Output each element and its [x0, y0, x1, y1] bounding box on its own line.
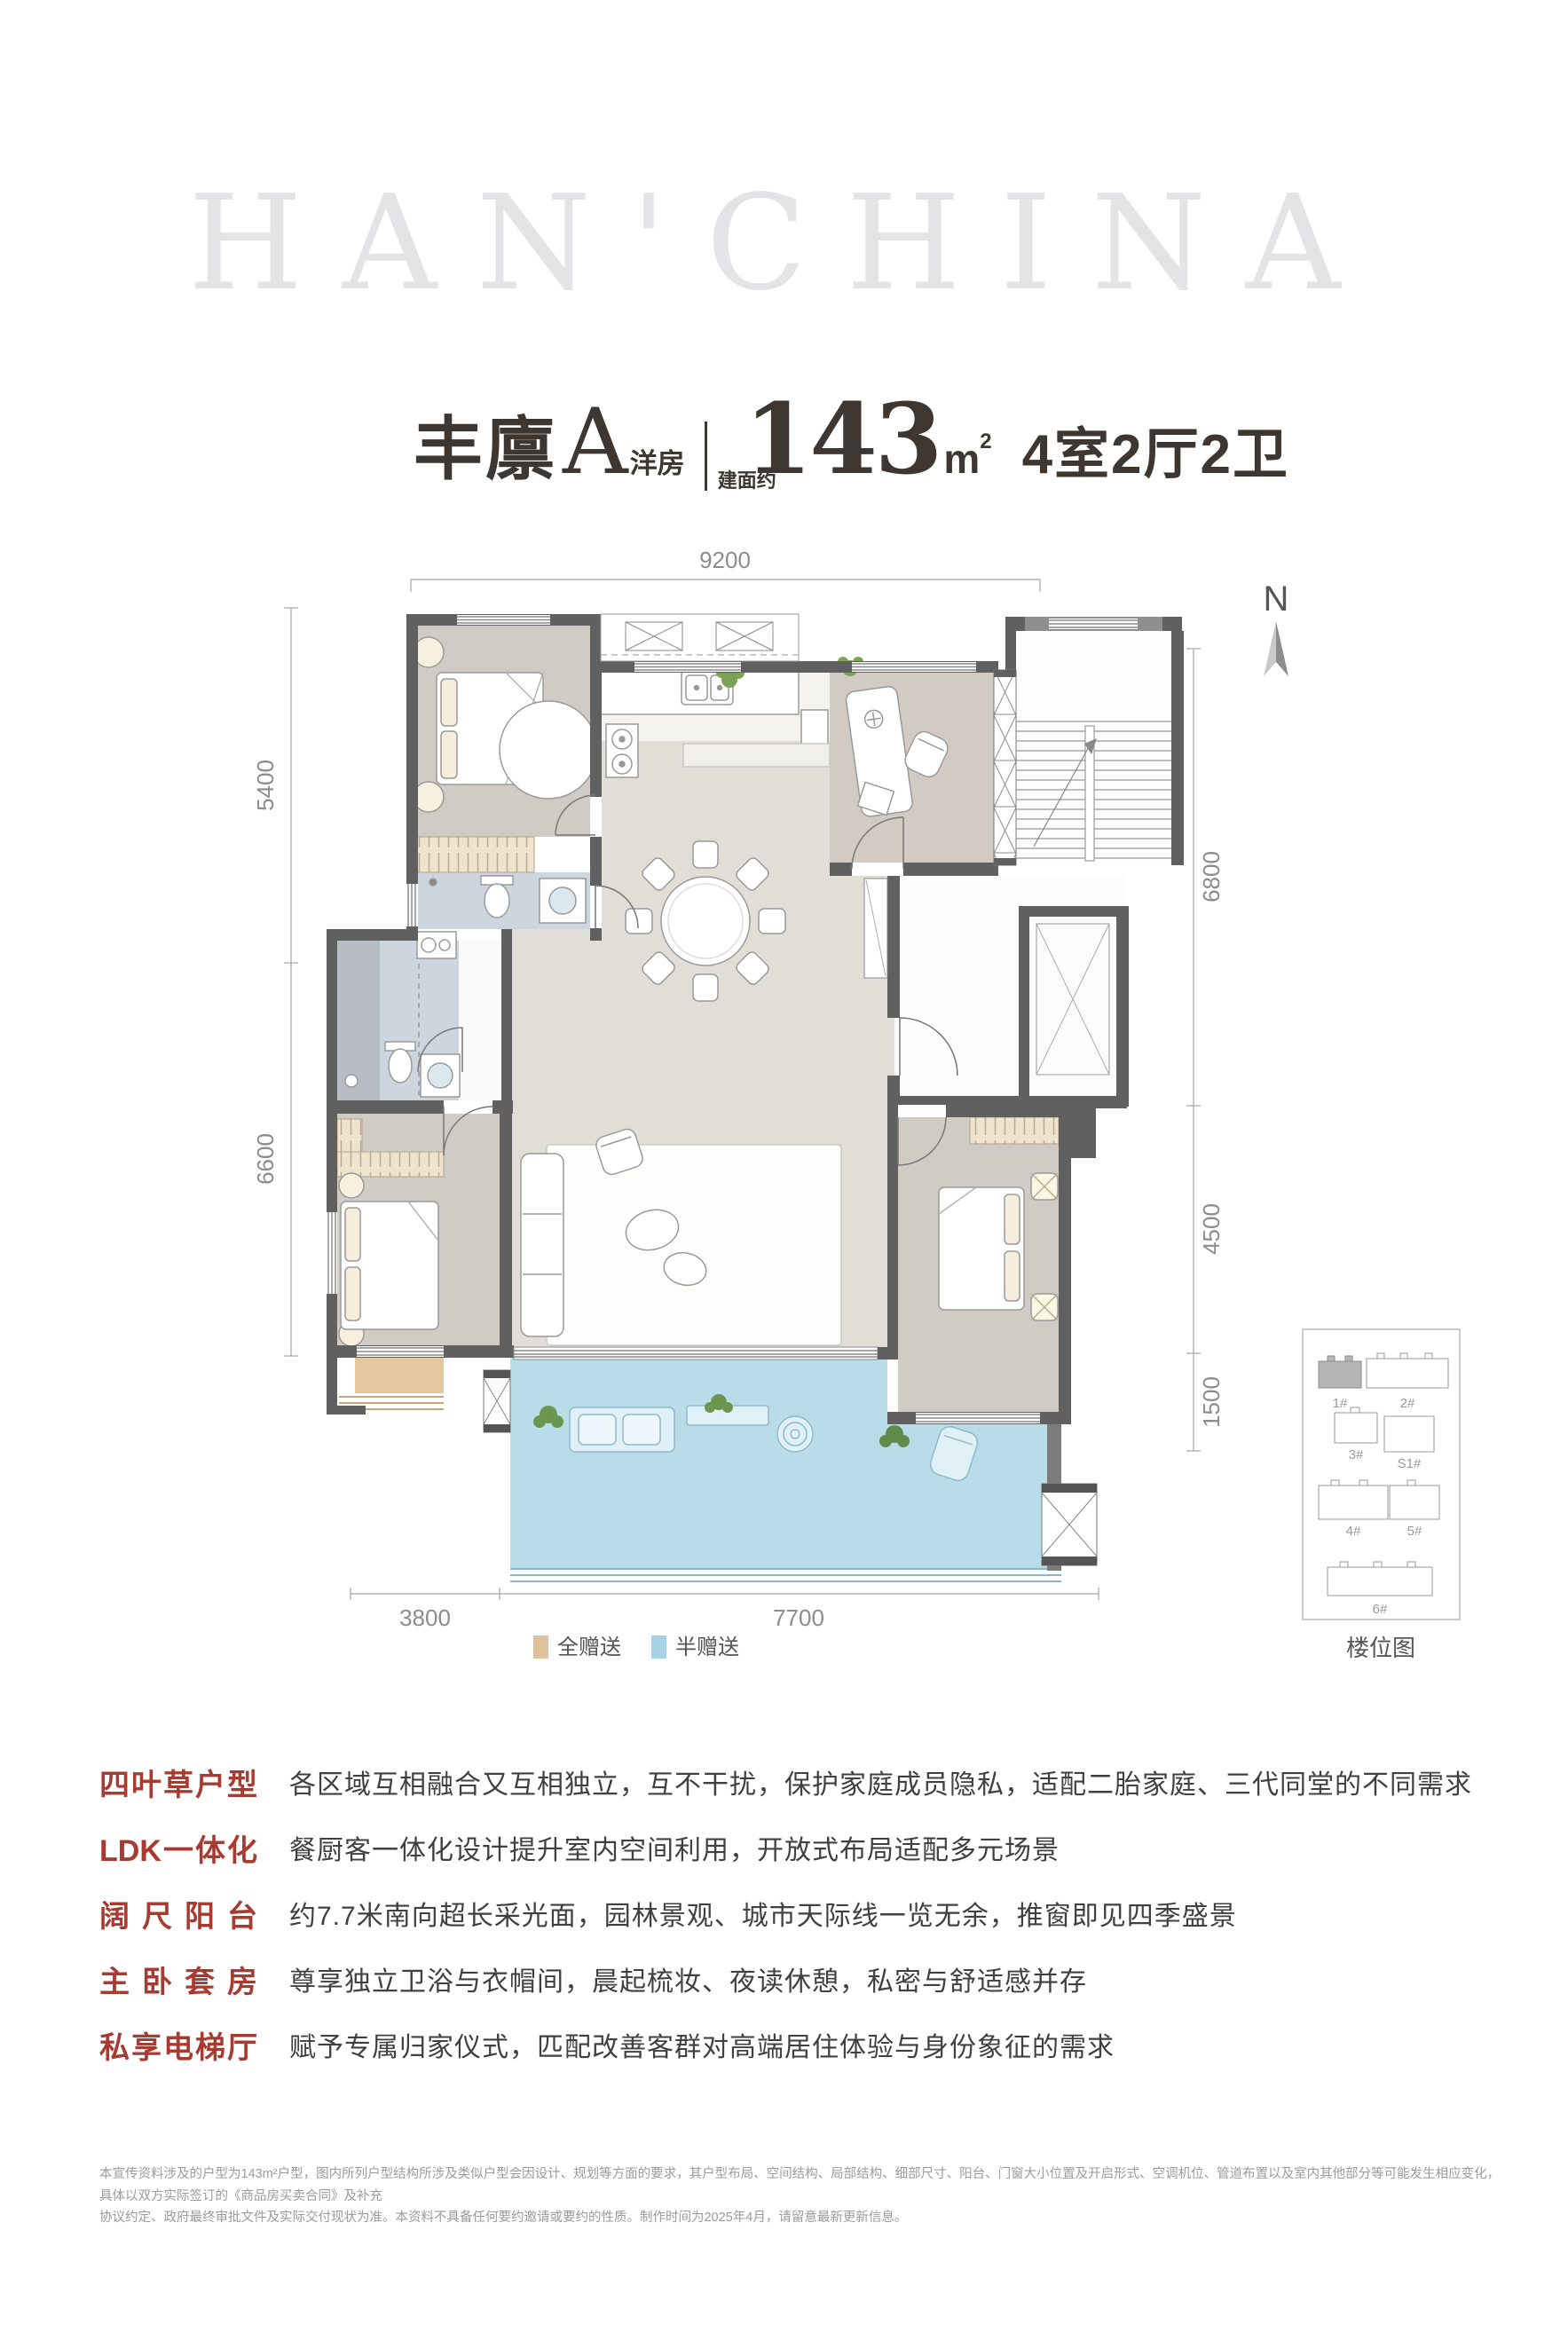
site-map: 1# 2# 3# S1# 4# 5# 6# 楼位图 — [1303, 1329, 1460, 1661]
dim-bottom-right-label: 7700 — [773, 1604, 824, 1631]
feature-desc: 赋予专属归家仪式，匹配改善客群对高端居住体验与身份象征的需求 — [289, 2030, 1115, 2066]
dim-left-lower-label: 6600 — [252, 1133, 279, 1185]
dim-left-upper-label: 5400 — [252, 760, 279, 811]
feature-row: 四叶草户型 各区域互相融合又互相独立，互不干扰，保护家庭成员隐私，适配二胎家庭、… — [99, 1768, 1501, 1803]
legend-half-gift-swatch — [651, 1635, 666, 1659]
unit-type-letter: A — [563, 390, 628, 495]
area-prefix: 建面约 — [718, 469, 739, 493]
feature-row: 私享电梯厅 赋予专属归家仪式，匹配改善客群对高端居住体验与身份象征的需求 — [99, 2030, 1501, 2066]
feature-label: 阔尺阳台 — [99, 1899, 257, 1935]
plan-legend: 全赠送 半赠送 — [533, 1635, 739, 1659]
disclaimer-line-2: 协议约定、政府最终审批文件及实际交付现状为准。本资料不具备任何要约邀请或要约的性… — [99, 2207, 1501, 2229]
dim-right-upper-label: 6800 — [1198, 851, 1225, 902]
unit-title: 丰廪 A 洋房 建面约 143 m2 4室2厅2卫 — [414, 382, 1289, 496]
feature-list: 四叶草户型 各区域互相融合又互相独立，互不干扰，保护家庭成员隐私，适配二胎家庭、… — [99, 1768, 1501, 2096]
svg-text:6#: 6# — [1373, 1602, 1388, 1617]
feature-row: 主卧套房 尊享独立卫浴与衣帽间，晨起梳妆、夜读休憩，私密与舒适感并存 — [99, 1965, 1501, 2000]
feature-desc: 约7.7米南向超长采光面，园林景观、城市天际线一览无余，推窗即见四季盛景 — [289, 1899, 1237, 1935]
legend-full-gift-swatch — [533, 1635, 548, 1659]
feature-label: LDK一体化 — [99, 1833, 257, 1869]
floor-plan: 9200 5400 6600 6800 4500 1500 3800 7700 … — [151, 531, 1535, 1684]
unit-type-suffix: 洋房 — [630, 441, 685, 481]
svg-text:4#: 4# — [1346, 1524, 1361, 1539]
svg-text:2#: 2# — [1400, 1396, 1415, 1411]
dim-right-middle-label: 4500 — [1198, 1203, 1225, 1255]
dim-top-label: 9200 — [699, 547, 751, 573]
svg-text:S1#: S1# — [1398, 1456, 1422, 1471]
svg-text:3#: 3# — [1349, 1447, 1364, 1462]
feature-desc: 餐厨客一体化设计提升室内空间利用，开放式布局适配多元场景 — [289, 1833, 1060, 1869]
unit-name: 丰廪 — [414, 394, 557, 493]
dim-right-lower-label: 1500 — [1198, 1376, 1225, 1428]
unit-layout: 4室2厅2卫 — [1022, 409, 1289, 489]
brand-watermark: HAN'CHINA — [0, 167, 1568, 319]
disclaimer: 本宣传资料涉及的户型为143m²户型，图内所列户型结构所涉及类似户型会因设计、规… — [99, 2163, 1501, 2229]
legend-half-gift-label: 半赠送 — [675, 1635, 739, 1659]
disclaimer-line-1: 本宣传资料涉及的户型为143m²户型，图内所列户型结构所涉及类似户型会因设计、规… — [99, 2163, 1501, 2207]
feature-desc: 各区域互相融合又互相独立，互不干扰，保护家庭成员隐私，适配二胎家庭、三代同堂的不… — [289, 1768, 1472, 1803]
dining-table — [626, 841, 785, 1001]
svg-text:1#: 1# — [1333, 1396, 1348, 1411]
feature-row: LDK一体化 餐厨客一体化设计提升室内空间利用，开放式布局适配多元场景 — [99, 1833, 1501, 1869]
dim-bottom-left-label: 3800 — [399, 1604, 451, 1631]
legend-full-gift-label: 全赠送 — [557, 1635, 621, 1659]
feature-desc: 尊享独立卫浴与衣帽间，晨起梳妆、夜读休憩，私密与舒适感并存 — [289, 1965, 1087, 2000]
feature-label: 私享电梯厅 — [99, 2030, 257, 2066]
floorplan-poster-page: HAN'CHINA 丰廪 A 洋房 建面约 143 m2 4室2厅2卫 — [0, 0, 1568, 2325]
feature-row: 阔尺阳台 约7.7米南向超长采光面，园林景观、城市天际线一览无余，推窗即见四季盛… — [99, 1899, 1501, 1935]
site-map-caption: 楼位图 — [1346, 1635, 1415, 1661]
feature-label: 主卧套房 — [99, 1965, 257, 2000]
svg-text:5#: 5# — [1407, 1524, 1422, 1539]
area-value: 143 — [745, 382, 941, 496]
area-unit: m2 — [943, 430, 991, 483]
title-divider — [705, 422, 707, 491]
north-arrow-icon: N — [1264, 579, 1289, 676]
svg-text:N: N — [1264, 579, 1289, 619]
feature-label: 四叶草户型 — [99, 1768, 257, 1803]
